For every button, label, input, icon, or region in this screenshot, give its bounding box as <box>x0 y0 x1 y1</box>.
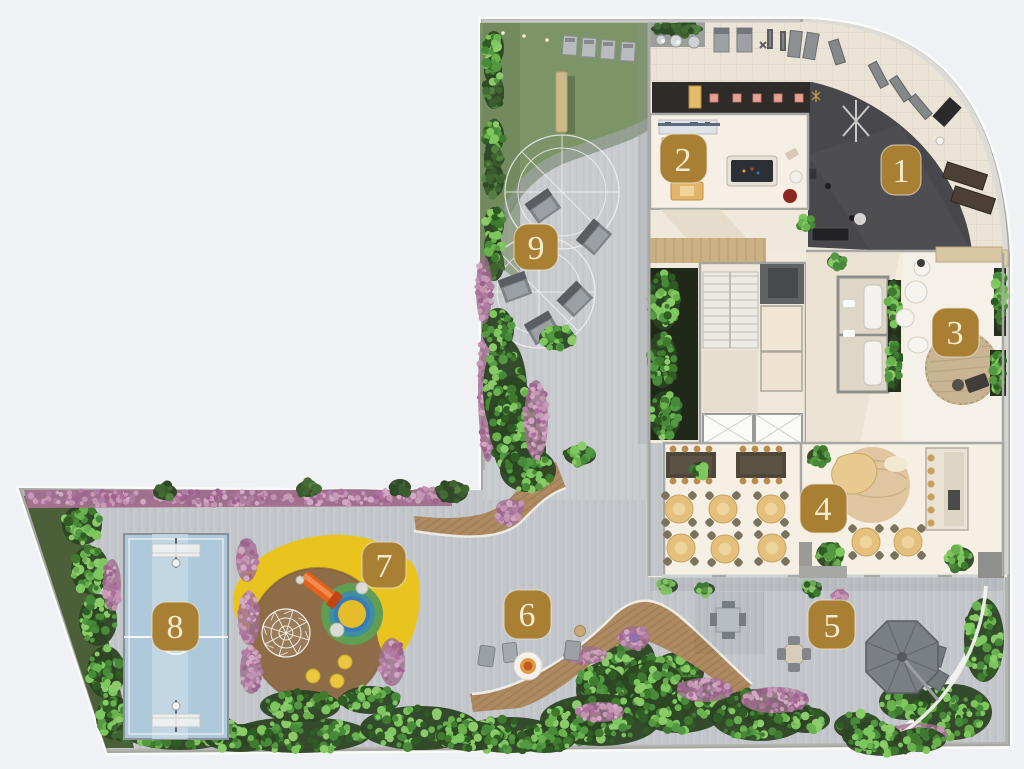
svg-text:1: 1 <box>893 153 910 190</box>
svg-text:4: 4 <box>815 491 832 528</box>
svg-text:6: 6 <box>519 597 536 634</box>
svg-text:3: 3 <box>947 315 964 352</box>
svg-text:5: 5 <box>824 608 841 645</box>
svg-text:8: 8 <box>167 609 184 646</box>
svg-text:9: 9 <box>528 230 545 267</box>
svg-text:2: 2 <box>675 142 692 179</box>
svg-text:7: 7 <box>376 548 393 585</box>
